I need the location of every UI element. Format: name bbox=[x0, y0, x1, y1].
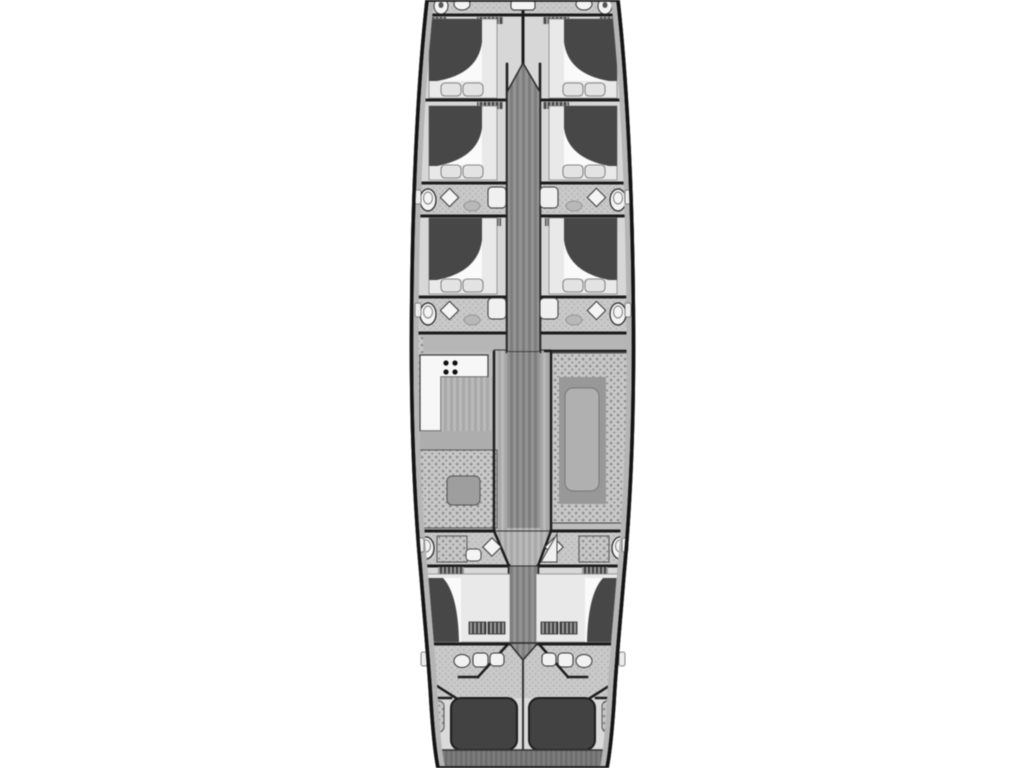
transom-head-stbd-fixture-2 bbox=[558, 653, 573, 667]
aft-cabin-stbd-pillow-2 bbox=[560, 622, 577, 634]
aft-cabin-port-vent bbox=[438, 567, 464, 574]
aft-corridor-floorboards bbox=[509, 566, 538, 643]
yacht-floor-plan-figure bbox=[0, 0, 1024, 768]
stove-burner-2 bbox=[452, 360, 457, 365]
aft-cabin-port-pillow-1 bbox=[469, 622, 486, 634]
lower-head-port-counter bbox=[437, 536, 467, 562]
stern-sunbed-stbd bbox=[529, 698, 595, 750]
fwd-cabin-port-pillow-1 bbox=[441, 165, 461, 178]
swim-platform bbox=[438, 750, 608, 768]
yacht-deck-plan bbox=[0, 0, 1024, 768]
aft-cabin-stbd-vent bbox=[582, 567, 608, 574]
portlight-port-2 bbox=[415, 303, 421, 317]
lower-head-port-hatch bbox=[466, 549, 481, 561]
bow-cabin-stbd-pillow-2 bbox=[585, 83, 605, 96]
portlight-stbd-4 bbox=[619, 652, 625, 666]
portlight-stbd-2 bbox=[625, 303, 631, 317]
mid-head-port-counter bbox=[464, 201, 480, 211]
mid-head-port-shower bbox=[488, 187, 506, 208]
mid-cabin-port-pillow-1 bbox=[441, 279, 461, 292]
mid-cabin-stbd-pillow-1 bbox=[563, 279, 583, 292]
bow-head-stbd-toilet-lid bbox=[603, 2, 608, 8]
mid-cabin-port-pillow-2 bbox=[463, 279, 483, 292]
companionway-floorboards bbox=[507, 63, 540, 352]
transom-head-stbd-fixture-1 bbox=[542, 653, 556, 666]
stove-burner-1 bbox=[443, 360, 448, 365]
transom-head-port-fixture-1 bbox=[473, 653, 488, 667]
starboard-salon-table bbox=[565, 388, 599, 491]
bow-cabin-port-pillow-1 bbox=[441, 83, 461, 96]
aft-head-port-shower bbox=[488, 298, 506, 319]
aft-cabin-stbd-pillow-1 bbox=[541, 622, 558, 634]
bow-cabin-port-pillow-2 bbox=[463, 83, 483, 96]
fwd-cabin-stbd-pillow-1 bbox=[563, 165, 583, 178]
lower-head-stbd-counter bbox=[579, 536, 609, 562]
aft-head-port-counter bbox=[464, 315, 480, 325]
mid-head-stbd-counter bbox=[566, 201, 582, 211]
stern-sunbed-port bbox=[451, 698, 517, 750]
transom-head-port-sink bbox=[454, 655, 470, 668]
galley-floorboards bbox=[441, 377, 494, 431]
galley-aft-band bbox=[420, 431, 494, 450]
stove-burner-3 bbox=[443, 369, 448, 374]
aft-head-stbd-counter bbox=[566, 315, 582, 325]
aft-head-stbd-shower bbox=[540, 298, 558, 319]
fwd-cabin-port-pillow-2 bbox=[463, 165, 483, 178]
portlight-port-1 bbox=[415, 190, 421, 204]
bow-head-port-toilet-lid bbox=[439, 2, 444, 8]
fwd-cabin-stbd-pillow-2 bbox=[585, 165, 605, 178]
transom-head-port-fixture-2 bbox=[490, 653, 504, 666]
mid-head-stbd-shower bbox=[540, 187, 558, 208]
mid-cabin-stbd-pillow-2 bbox=[585, 279, 605, 292]
bow-cabin-stbd-pillow-1 bbox=[563, 83, 583, 96]
aft-cabin-port-pillow-2 bbox=[488, 622, 505, 634]
hull-interior bbox=[405, 0, 641, 768]
port-dinette-table bbox=[447, 476, 480, 505]
transom-head-stbd-sink bbox=[576, 655, 592, 668]
stove-burner-4 bbox=[452, 369, 457, 374]
companionway-salon-floorboards bbox=[507, 352, 540, 528]
